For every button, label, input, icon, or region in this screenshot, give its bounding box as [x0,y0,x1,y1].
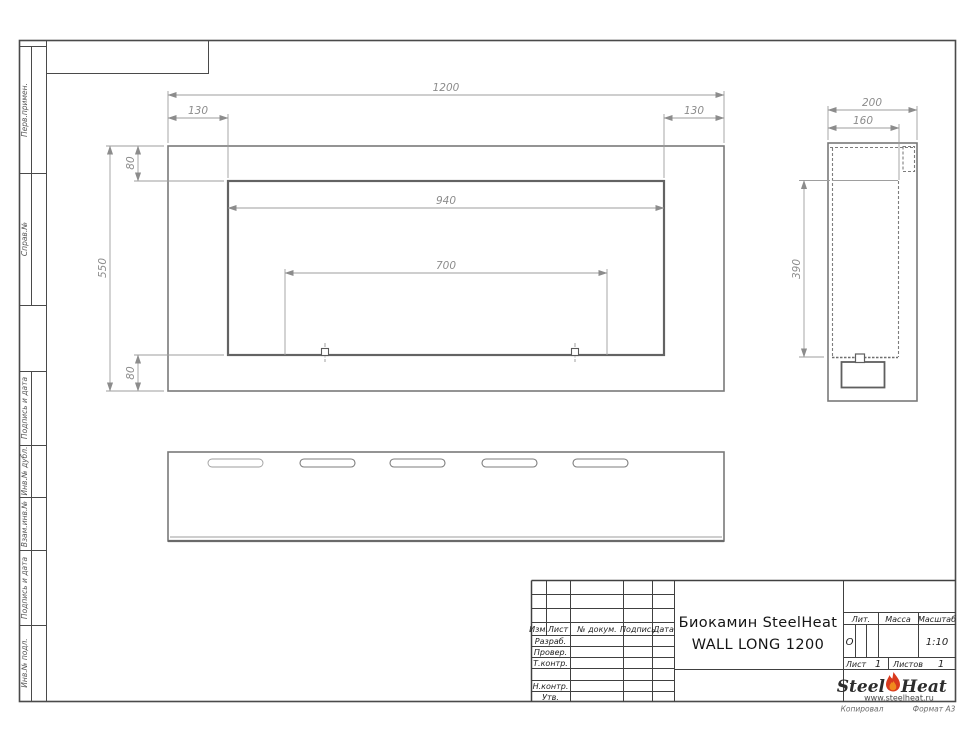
vent-slot-5 [573,459,628,467]
stamp-label-podpis-data-2: Подпись и дата [20,557,29,620]
dim-text-940: 940 [436,195,456,207]
row-tcontrol: Т.контр. [533,659,568,668]
dim-text-700: 700 [436,260,456,272]
dim-text-550: 550 [97,258,109,278]
sheet-background [0,0,970,749]
sheet-label: Лист [845,660,867,669]
scale-label: Масштаб [918,615,956,624]
dim-text-1200: 1200 [433,82,460,94]
stamp-label-inv-dubl: Инв.№ дубл. [20,447,29,496]
dim-text-80-top: 80 [125,156,137,170]
lit-label: Лит. [851,615,870,624]
doc-title-line1: Биокамин SteelHeat [679,615,838,631]
stamp-label-sprav-no: Справ.№ [20,222,29,256]
row-developed: Разраб. [535,637,566,646]
row-ncontrol: Н.контр. [533,682,569,691]
logo-site-url: www.steelheat.ru [864,694,934,703]
stamp-label-vzam-inv: Взам.инв.№ [20,501,29,547]
stamp-label-perv-primen: Перв.примен. [20,83,29,137]
dim-text-80-bottom: 80 [125,366,137,380]
sheet-number: 1 [875,659,881,670]
vent-slot-3 [390,459,445,467]
col-doc: № докум. [576,625,616,634]
vent-slot-4 [482,459,537,467]
scale-value: 1:10 [926,637,948,648]
stamp-label-inv-podl: Инв.№ подл. [20,638,29,687]
drawing-sheet: Перв.примен. Справ.№ Подпись и дата Инв.… [0,0,970,749]
lit-value: О [846,637,854,648]
dim-text-390: 390 [791,259,803,279]
col-date: Дата [652,625,674,634]
dim-text-200: 200 [862,97,882,109]
row-checked: Провер. [534,648,567,657]
col-sign: Подпись [620,625,656,634]
dim-text-160: 160 [853,115,873,127]
sheets-total: 1 [938,659,944,670]
dim-text-130-right: 130 [684,105,704,117]
mass-label: Масса [885,615,911,624]
stamp-label-podpis-data-1: Подпись и дата [20,377,29,440]
col-list: Лист [547,625,569,634]
col-izm: Изм. [529,625,548,634]
footer-format: Формат А3 [913,705,956,714]
vent-slot-2 [300,459,355,467]
row-approved: Утв. [542,693,559,702]
sheets-label: Листов [892,660,923,669]
burner-notch [856,354,865,363]
doc-title-line2: WALL LONG 1200 [692,637,824,653]
footer-copied: Копировал [841,705,884,714]
burner-tank [842,362,885,388]
dim-text-130-left: 130 [188,105,208,117]
